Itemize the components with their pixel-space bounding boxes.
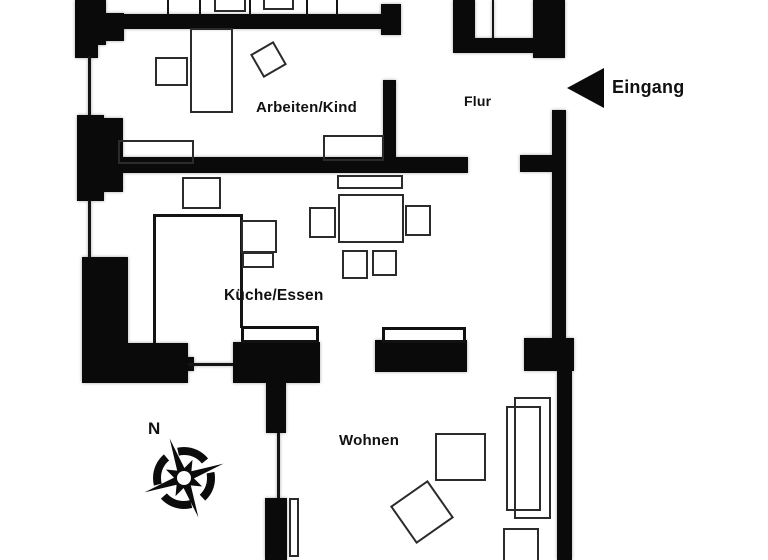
wall-stair-right <box>533 0 565 58</box>
sofa-inner <box>506 406 541 511</box>
room-label-wohnen: Wohnen <box>339 432 399 449</box>
wall-door-pier-a <box>266 383 286 433</box>
compass-rose-icon <box>138 432 230 524</box>
kitchen-cabinet-square <box>182 177 221 209</box>
armchair-bottom <box>503 528 539 560</box>
window-line-left-2 <box>88 200 91 258</box>
door-leaf <box>289 498 299 557</box>
closet-divider-3 <box>249 0 251 15</box>
door-line <box>277 433 280 498</box>
windowsill-arbeiten-1 <box>118 140 194 164</box>
wall-flur-vertical <box>383 80 396 162</box>
desk <box>190 28 233 113</box>
wall-middle-stub <box>520 155 554 172</box>
kitchen-stove <box>242 252 274 268</box>
kitchen-sink <box>241 220 277 253</box>
room-label-flur: Flur <box>464 93 491 109</box>
room-label-kueche-essen: Küche/Essen <box>224 287 324 305</box>
entrance-arrow-icon <box>567 68 604 108</box>
closet-divider-5 <box>336 0 338 15</box>
kitchen-counter-left-edge <box>153 214 156 343</box>
stair-divider-line <box>492 0 494 38</box>
wall-pier-left-3 <box>82 257 128 345</box>
sideboard-block <box>375 340 467 372</box>
closet-box-2 <box>263 0 294 10</box>
wall-pier-top-left <box>75 0 106 45</box>
wall-top <box>110 14 383 29</box>
closet-divider-2 <box>199 0 201 15</box>
dining-chair-left <box>309 207 336 238</box>
floorplan-canvas: Arbeiten/Kind Flur Küche/Essen Wohnen Ei… <box>0 0 768 560</box>
dining-bench-top <box>337 175 403 189</box>
room-label-arbeiten-kind: Arbeiten/Kind <box>256 99 357 116</box>
closet-box-1 <box>214 0 246 12</box>
wall-kitchen-bottom <box>82 343 188 383</box>
kitchen-island-block <box>233 342 320 383</box>
wall-door-pier-b <box>265 498 287 560</box>
closet-divider-4 <box>306 0 308 15</box>
wall-top-endcap <box>381 4 401 35</box>
kitchen-counter-top-edge <box>153 214 243 217</box>
stool-arbeiten <box>155 57 188 86</box>
dining-chair-bottom-left <box>342 250 368 279</box>
wall-right-upper <box>552 110 566 338</box>
wall-pier-top-left-step <box>75 45 98 58</box>
entrance-label: Eingang <box>612 77 684 98</box>
wall-right-window-block <box>524 338 574 371</box>
kitchen-island-top <box>241 326 319 343</box>
dining-chair-right <box>405 205 431 236</box>
window-line-left-1 <box>88 56 91 116</box>
windowsill-arbeiten-2 <box>323 135 384 161</box>
closet-divider-1 <box>167 0 169 15</box>
wall-right-lower <box>557 371 572 560</box>
coffee-table <box>435 433 486 481</box>
sideboard-top <box>382 327 466 343</box>
wall-pier-left-2 <box>77 115 104 201</box>
window-line-kitchen <box>188 363 234 366</box>
dining-chair-bottom-right <box>372 250 397 276</box>
dining-table <box>338 194 404 243</box>
